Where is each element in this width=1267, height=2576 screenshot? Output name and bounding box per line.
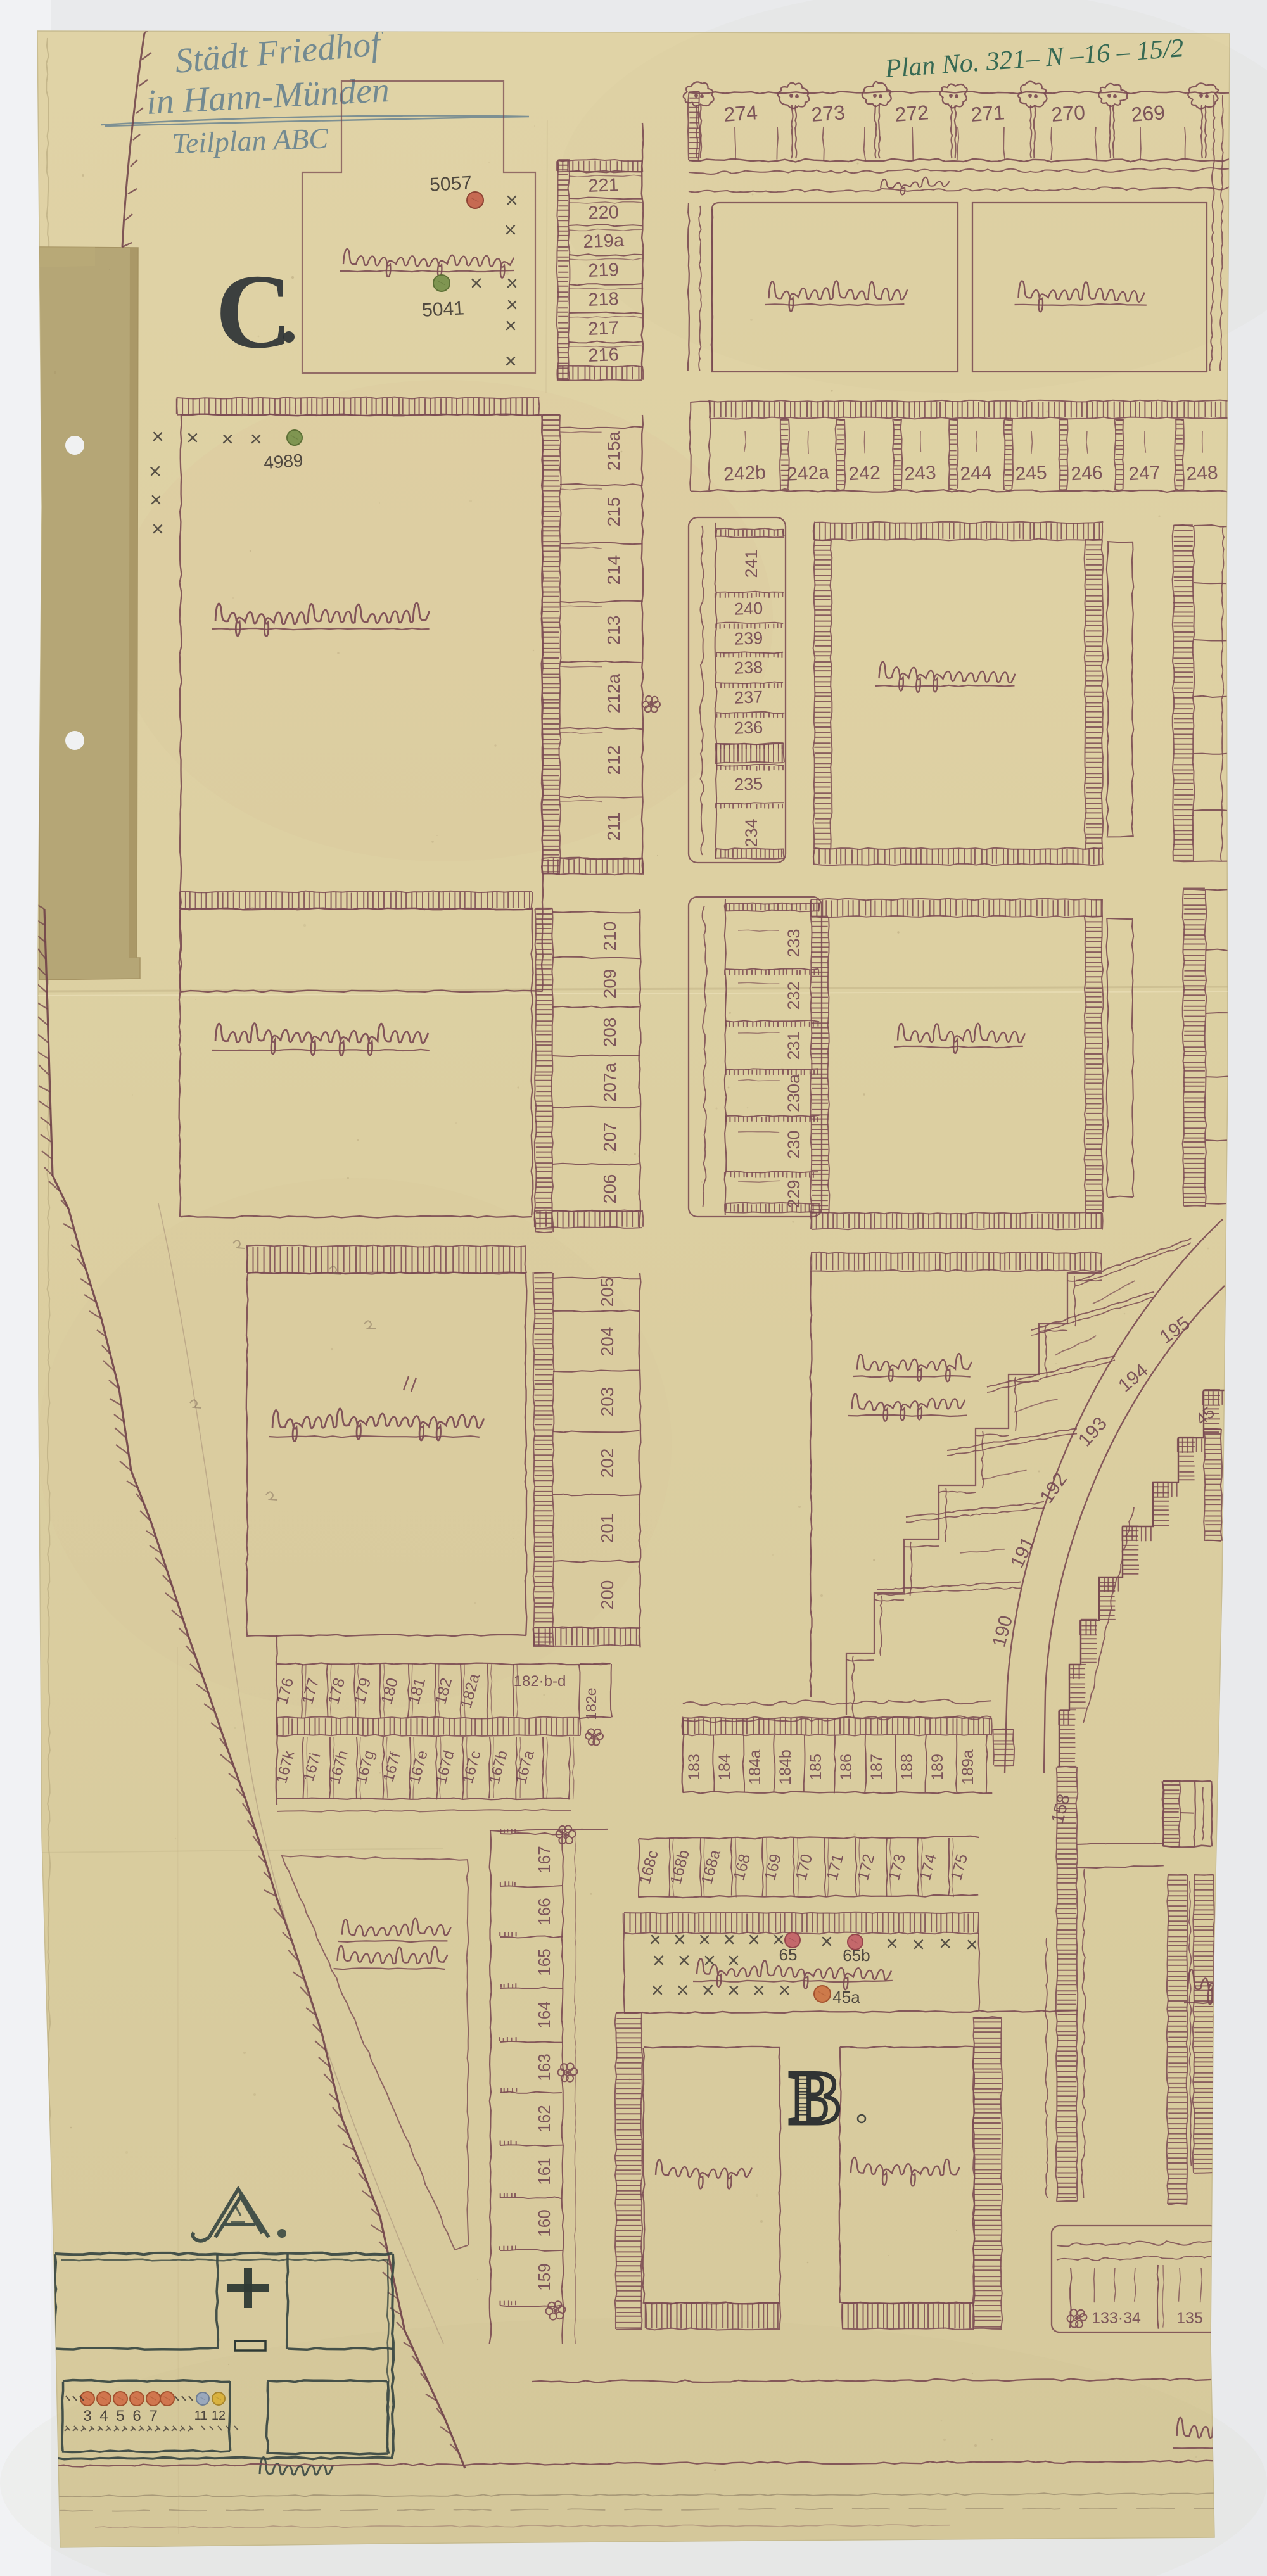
svg-text:212a: 212a [604, 673, 623, 713]
svg-text:162: 162 [535, 2105, 554, 2132]
svg-text:C: C [215, 253, 292, 371]
svg-text:184: 184 [716, 1754, 734, 1780]
svg-text:4989: 4989 [263, 450, 303, 473]
svg-text:212: 212 [604, 746, 623, 775]
svg-text:207a: 207a [600, 1062, 620, 1102]
svg-text:234: 234 [742, 818, 761, 847]
svg-text:201: 201 [597, 1514, 617, 1544]
svg-text:230a: 230a [784, 1074, 803, 1112]
svg-text:233: 233 [784, 929, 803, 957]
svg-text:219: 219 [588, 260, 619, 281]
svg-text:242b: 242b [723, 462, 766, 485]
svg-text:186: 186 [837, 1754, 855, 1780]
svg-text:271: 271 [970, 101, 1005, 126]
svg-text:246: 246 [1071, 462, 1104, 485]
svg-text:163: 163 [535, 2053, 554, 2081]
svg-text:182·b-d: 182·b-d [514, 1673, 566, 1690]
svg-text:270: 270 [1050, 101, 1086, 126]
svg-text:221: 221 [588, 175, 619, 196]
svg-text:159: 159 [535, 2263, 554, 2290]
svg-text:183: 183 [685, 1754, 703, 1780]
svg-text:135: 135 [1176, 2309, 1203, 2327]
svg-text:182e: 182e [583, 1687, 599, 1720]
svg-text:273: 273 [810, 101, 846, 126]
svg-text:205: 205 [597, 1278, 617, 1307]
svg-text:237: 237 [734, 687, 763, 707]
svg-text:217: 217 [588, 318, 619, 339]
svg-text:188: 188 [898, 1754, 916, 1780]
svg-text:12: 12 [212, 2409, 226, 2423]
svg-text:B: B [789, 2055, 840, 2140]
svg-text:184a: 184a [746, 1749, 764, 1785]
svg-text:240: 240 [734, 599, 763, 619]
svg-text:238: 238 [734, 657, 763, 678]
svg-text:3: 3 [83, 2408, 91, 2425]
svg-text:203: 203 [597, 1387, 617, 1417]
svg-text:5057: 5057 [429, 172, 472, 195]
svg-text:213: 213 [604, 616, 623, 645]
svg-text:165: 165 [535, 1948, 554, 1976]
svg-text:7: 7 [149, 2408, 157, 2425]
svg-text:215: 215 [604, 497, 623, 527]
svg-text:161: 161 [535, 2157, 554, 2185]
svg-text:218: 218 [588, 289, 619, 310]
svg-text:235: 235 [734, 774, 763, 794]
svg-text:202: 202 [597, 1449, 617, 1478]
svg-text:247: 247 [1128, 462, 1161, 485]
svg-text:242a: 242a [786, 462, 830, 485]
svg-text:216: 216 [588, 345, 619, 366]
svg-text:230: 230 [784, 1130, 803, 1158]
svg-text:65b: 65b [843, 1946, 870, 1965]
svg-text:244: 244 [960, 462, 993, 485]
svg-text:239: 239 [734, 628, 763, 649]
svg-text:6: 6 [132, 2408, 141, 2425]
svg-text:208: 208 [600, 1018, 620, 1048]
svg-text:272: 272 [894, 101, 929, 126]
svg-text:232: 232 [784, 981, 803, 1010]
svg-text:187: 187 [868, 1754, 886, 1780]
svg-text:243: 243 [904, 462, 937, 485]
svg-text:5041: 5041 [421, 298, 464, 320]
svg-text:215a: 215a [604, 431, 623, 471]
svg-text:185: 185 [807, 1754, 825, 1780]
svg-text:211: 211 [604, 813, 623, 841]
svg-text:4: 4 [99, 2408, 108, 2425]
svg-text:269: 269 [1130, 101, 1166, 126]
svg-text:245: 245 [1015, 462, 1048, 485]
svg-text:210: 210 [600, 922, 620, 951]
svg-text:166: 166 [535, 1898, 554, 1925]
svg-text:65: 65 [779, 1945, 798, 1964]
svg-text:214: 214 [604, 555, 623, 585]
svg-text:200: 200 [597, 1580, 617, 1610]
svg-text:45a: 45a [832, 1988, 860, 2007]
svg-text:133·34: 133·34 [1092, 2309, 1141, 2327]
svg-text:204: 204 [597, 1327, 617, 1357]
svg-text:5: 5 [116, 2408, 124, 2425]
svg-text:164: 164 [535, 2001, 554, 2028]
svg-text:236: 236 [734, 718, 763, 738]
svg-text:167: 167 [535, 1846, 554, 1873]
svg-text:206: 206 [600, 1174, 620, 1204]
svg-text:207: 207 [600, 1122, 620, 1152]
svg-text:184b: 184b [777, 1749, 794, 1785]
svg-text:189: 189 [929, 1754, 946, 1780]
svg-text:219a: 219a [583, 231, 625, 252]
svg-text:189a: 189a [959, 1749, 977, 1785]
svg-text:231: 231 [784, 1031, 803, 1060]
svg-text:220: 220 [588, 202, 619, 224]
svg-text:274: 274 [723, 101, 758, 126]
svg-text:242: 242 [848, 462, 881, 485]
svg-text:209: 209 [600, 969, 620, 999]
svg-text:241: 241 [742, 549, 761, 578]
svg-text:160: 160 [535, 2209, 554, 2237]
svg-text:11: 11 [194, 2409, 208, 2423]
svg-text:Teilplan ABC: Teilplan ABC [172, 122, 330, 160]
svg-text:248: 248 [1186, 462, 1219, 485]
